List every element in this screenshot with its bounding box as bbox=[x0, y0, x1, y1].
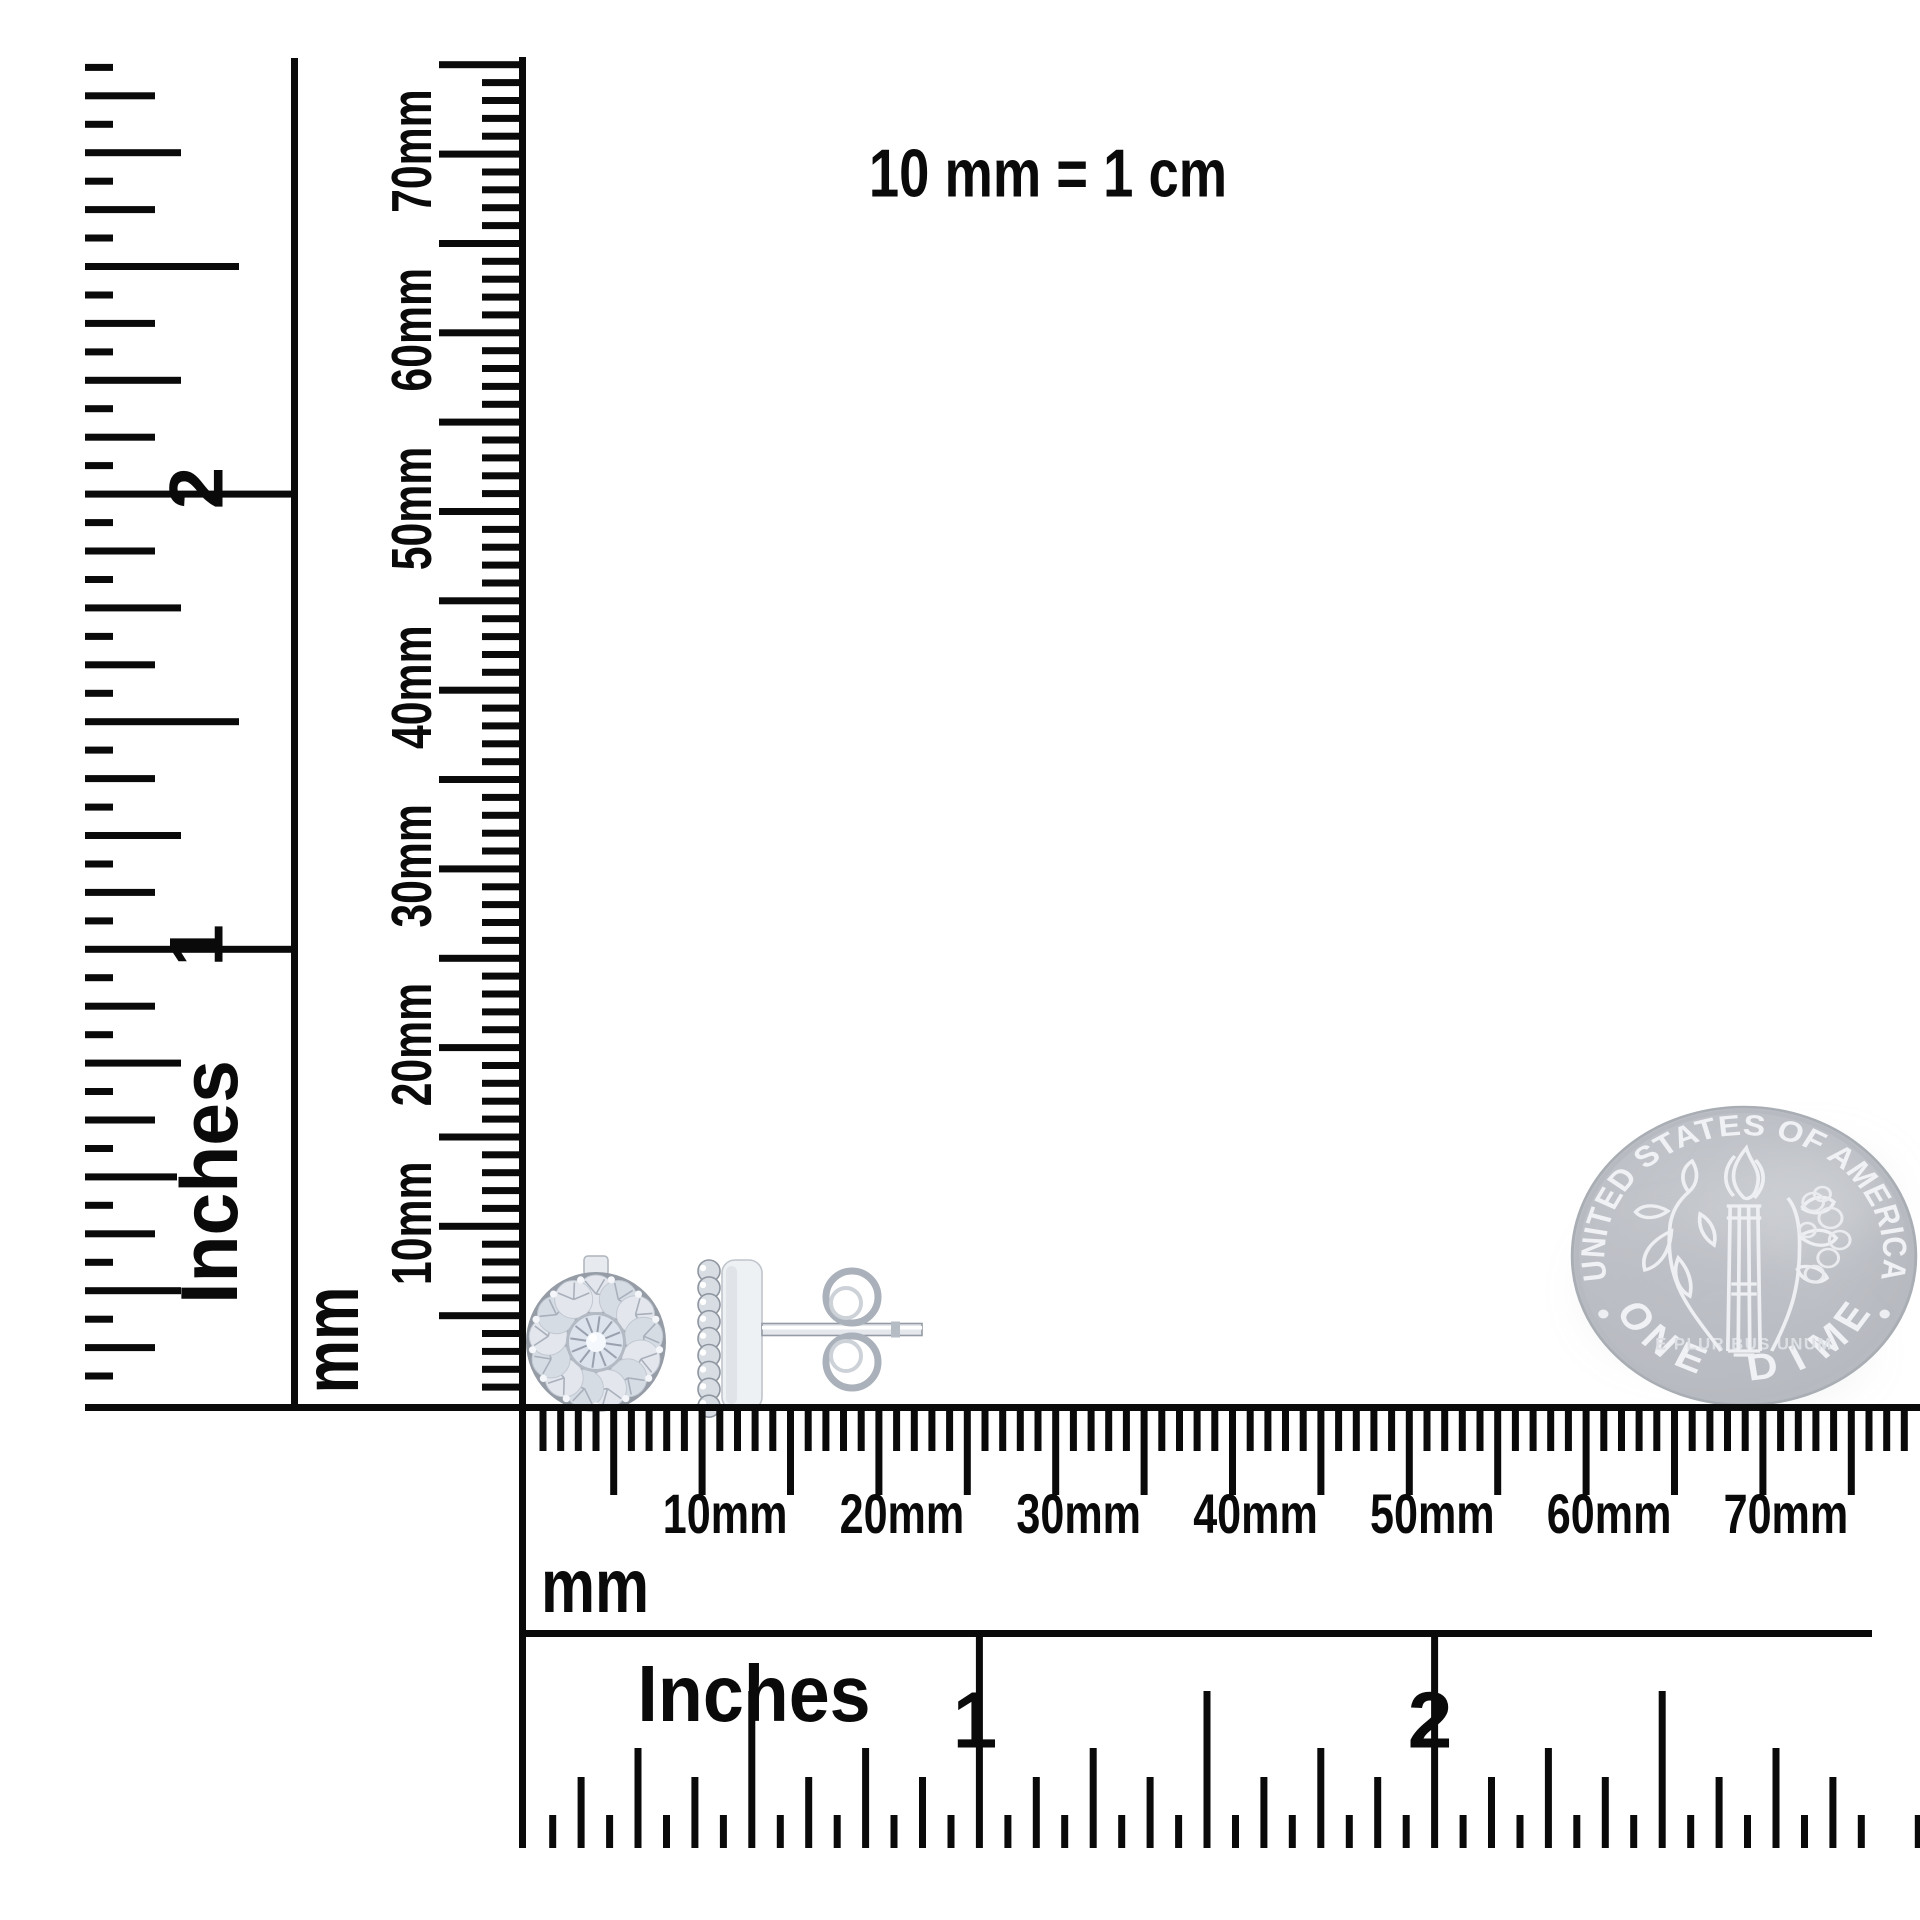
svg-text:70mm: 70mm bbox=[1724, 1483, 1849, 1546]
svg-text:mm: mm bbox=[541, 1543, 649, 1628]
svg-text:50mm: 50mm bbox=[379, 447, 443, 571]
svg-text:1: 1 bbox=[953, 1676, 998, 1765]
svg-text:60mm: 60mm bbox=[1547, 1483, 1672, 1546]
svg-text:2: 2 bbox=[1408, 1676, 1453, 1765]
svg-text:70mm: 70mm bbox=[379, 89, 443, 213]
svg-text:40mm: 40mm bbox=[1193, 1483, 1318, 1546]
svg-text:mm: mm bbox=[287, 1287, 374, 1394]
svg-text:50mm: 50mm bbox=[1370, 1483, 1495, 1546]
svg-text:1: 1 bbox=[155, 924, 240, 966]
svg-text:Inches: Inches bbox=[637, 1649, 870, 1739]
svg-text:10mm: 10mm bbox=[663, 1483, 788, 1546]
svg-text:30mm: 30mm bbox=[1016, 1483, 1141, 1546]
svg-text:60mm: 60mm bbox=[379, 268, 443, 392]
svg-text:40mm: 40mm bbox=[379, 625, 443, 749]
svg-text:20mm: 20mm bbox=[840, 1483, 965, 1546]
svg-text:30mm: 30mm bbox=[379, 804, 443, 928]
svg-text:2: 2 bbox=[155, 467, 240, 509]
svg-text:10mm: 10mm bbox=[379, 1162, 443, 1286]
svg-text:10 mm = 1 cm: 10 mm = 1 cm bbox=[869, 136, 1227, 212]
svg-text:Inches: Inches bbox=[163, 1060, 254, 1304]
svg-text:20mm: 20mm bbox=[379, 983, 443, 1107]
